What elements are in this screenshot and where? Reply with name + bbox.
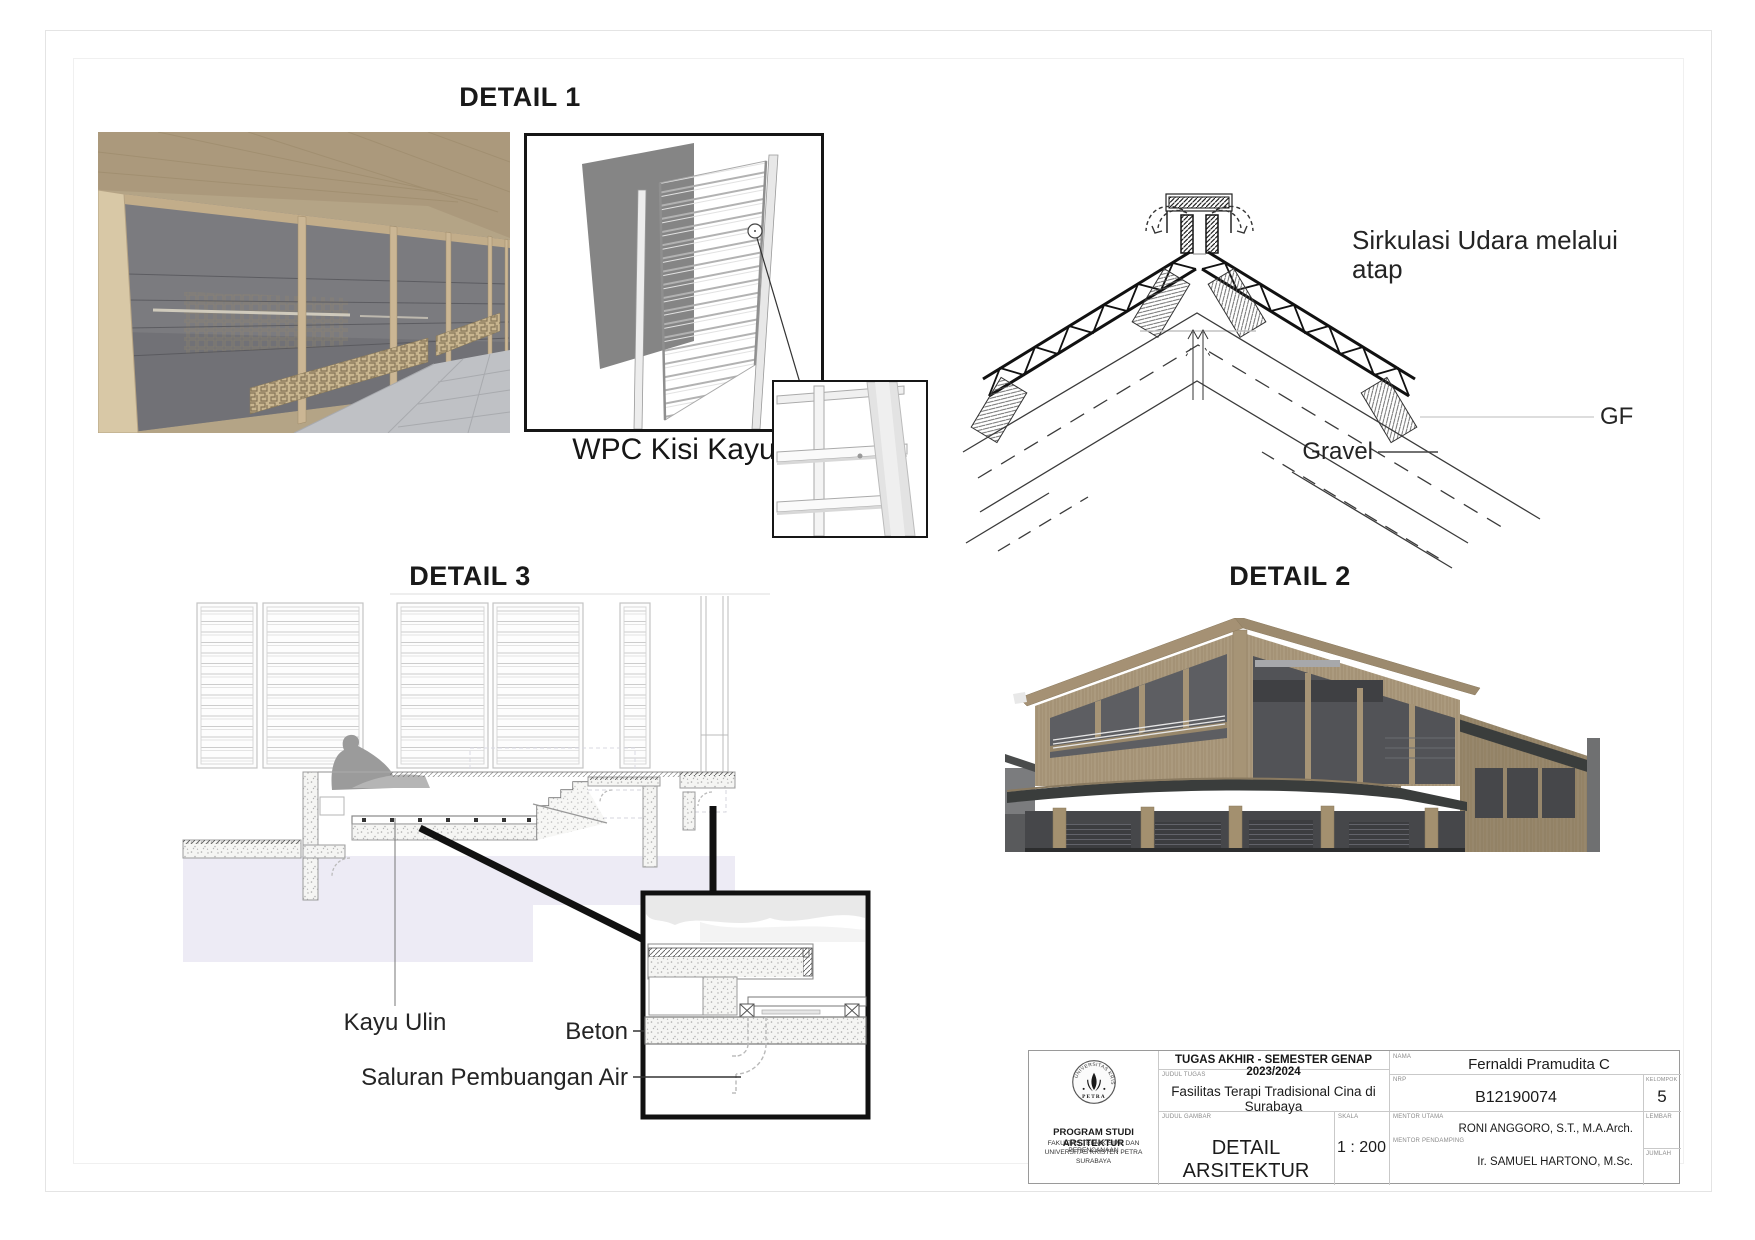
judul-gambar-label: JUDUL GAMBAR: [1162, 1114, 1211, 1120]
detail1-title: DETAIL 1: [440, 83, 600, 113]
mentor-pendamping-value: Ir. SAMUEL HARTONO, M.Sc.: [1389, 1156, 1633, 1168]
judul-tugas-label: JUDUL TUGAS: [1162, 1072, 1206, 1078]
detail3-kayu-ulin-label: Kayu Ulin: [315, 1010, 475, 1036]
institution-university: UNIVERSITAS KRISTEN PETRA: [1029, 1149, 1158, 1156]
nama-value: Fernaldi Pramudita C: [1409, 1056, 1669, 1073]
skala-label: SKALA: [1338, 1114, 1358, 1120]
title-block: UNIVERSITAS KRISTEN PETRA PROGRAM STUDI …: [1028, 1050, 1680, 1184]
judul-gambar-value: DETAIL ARSITEKTUR: [1158, 1137, 1334, 1183]
drawing-sheet: DETAIL 1: [0, 0, 1755, 1240]
detail3-beton-label: Beton: [500, 1019, 628, 1045]
kelompok-label: KELOMPOK: [1646, 1077, 1677, 1083]
detail1-caption: WPC Kisi Kayu: [564, 433, 784, 466]
skala-value: 1 : 200: [1334, 1139, 1389, 1157]
mentor-utama-value: RONI ANGGORO, S.T., M.A.Arch.: [1389, 1123, 1633, 1135]
detail1-zoom-drawing: [774, 382, 926, 536]
detail1-interior-render: [98, 132, 510, 433]
judul-tugas-value: Fasilitas Terapi Tradisional Cina di Sur…: [1158, 1084, 1389, 1114]
mentor-pendamping-label: MENTOR PENDAMPING: [1393, 1138, 1464, 1144]
jumlah-label: JUMLAH: [1646, 1151, 1671, 1157]
roof-air-label: Sirkulasi Udara melalui atap: [1352, 226, 1652, 283]
nrp-value: B12190074: [1389, 1089, 1643, 1107]
tb-divider: [1643, 1148, 1681, 1149]
nrp-label: NRP: [1393, 1077, 1406, 1083]
detail3-saluran-label: Saluran Pembuangan Air: [330, 1065, 628, 1091]
detail2-exterior-render: [1005, 618, 1600, 852]
mentor-utama-label: MENTOR UTAMA: [1393, 1114, 1444, 1120]
detail2-title: DETAIL 2: [1210, 562, 1370, 592]
lembar-label: LEMBAR: [1646, 1114, 1672, 1120]
tb-divider: [1389, 1074, 1681, 1075]
detail1-zoom-inset: [772, 380, 928, 538]
seal-bottom-text: PETRA: [1082, 1094, 1106, 1100]
roof-gravel-label: Gravel: [1258, 439, 1373, 465]
university-seal-icon: UNIVERSITAS KRISTEN PETRA: [1071, 1059, 1117, 1105]
kelompok-value: 5: [1643, 1087, 1681, 1107]
institution-city: SURABAYA: [1029, 1158, 1158, 1165]
roof-gf-label: GF: [1600, 404, 1660, 430]
